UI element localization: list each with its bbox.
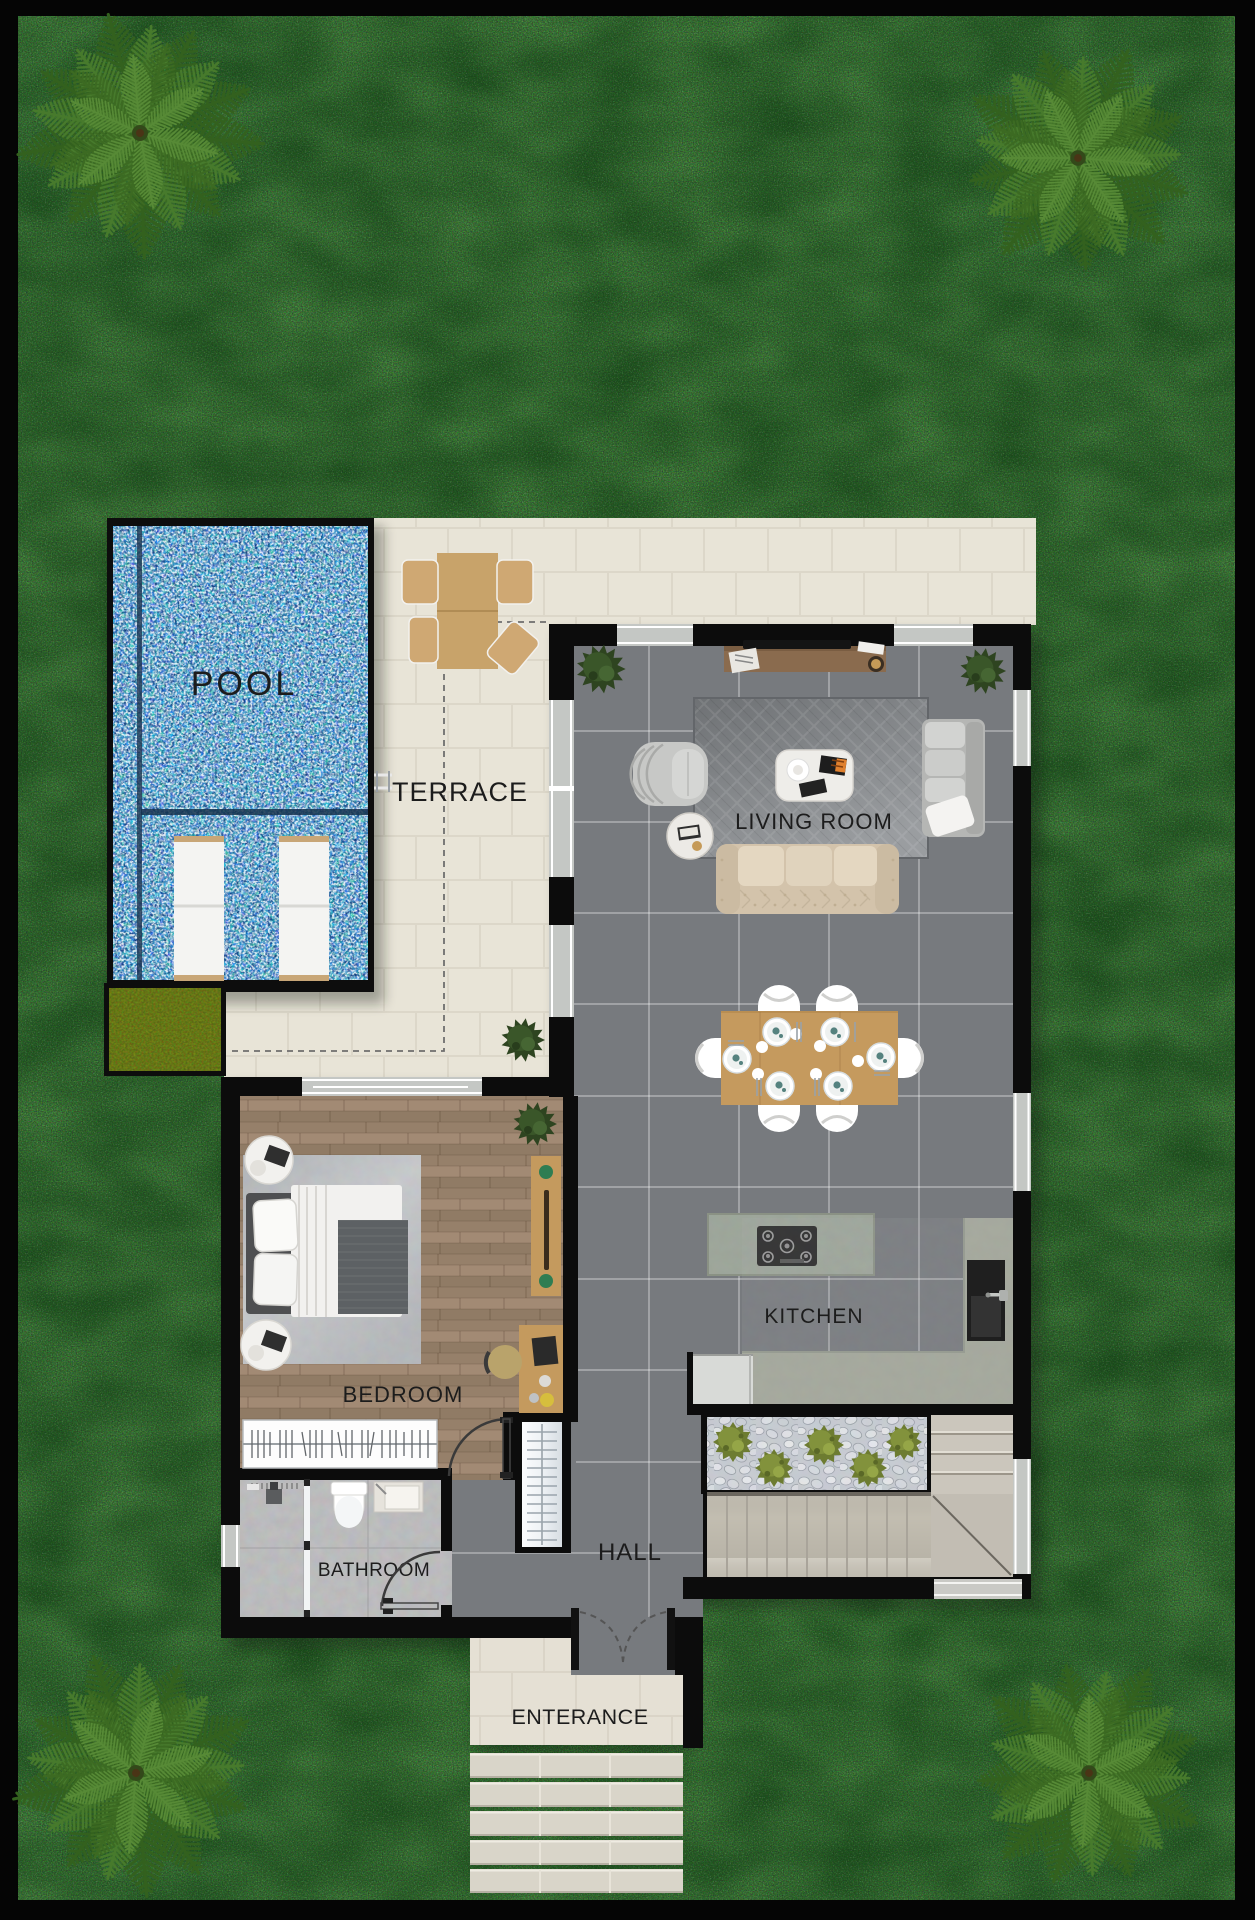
svg-text:ENTERANCE: ENTERANCE xyxy=(511,1705,648,1729)
svg-text:TERRACE: TERRACE xyxy=(392,777,528,807)
svg-text:KITCHEN: KITCHEN xyxy=(764,1305,863,1328)
svg-text:LIVING ROOM: LIVING ROOM xyxy=(735,809,893,834)
svg-text:HALL: HALL xyxy=(598,1539,662,1566)
svg-text:POOL: POOL xyxy=(191,665,297,703)
svg-text:BATHROOM: BATHROOM xyxy=(318,1560,430,1581)
svg-text:BEDROOM: BEDROOM xyxy=(343,1382,464,1407)
